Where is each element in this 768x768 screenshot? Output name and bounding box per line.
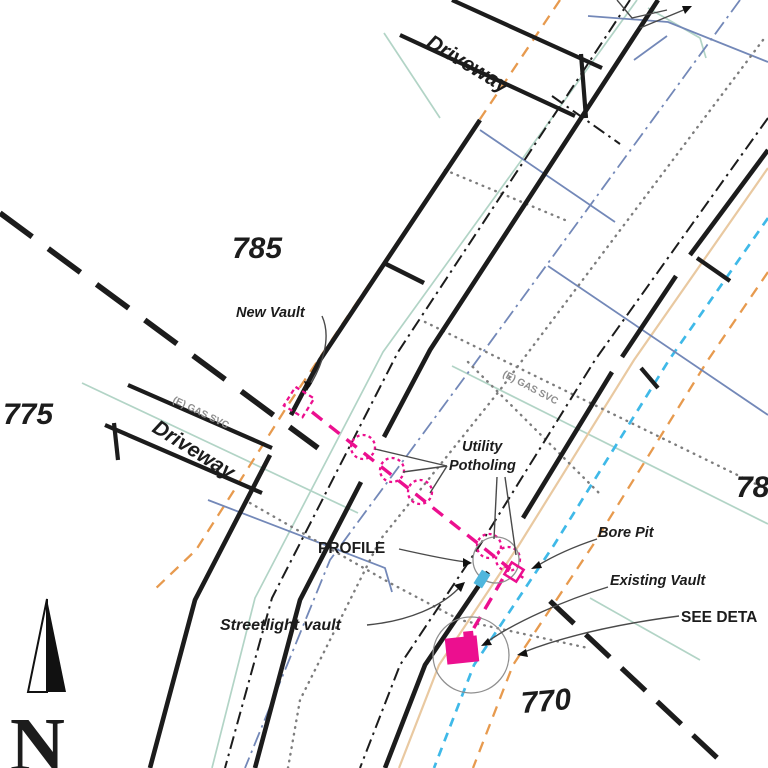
north-letter: N — [10, 703, 65, 768]
left-road-curbs — [150, 0, 658, 768]
station-780: 78 — [736, 471, 768, 504]
callout-labels: New Vault Utility Potholing PROFILE Stre… — [220, 305, 757, 634]
station-785: 785 — [232, 232, 283, 265]
gas-service-labels: (E) GAS SVC (E) GAS SVC — [171, 369, 560, 432]
north-arrow: N — [10, 599, 66, 768]
utility-potholing-label-line2: Potholing — [449, 458, 516, 474]
plan-drawing: N 785 775 78 770 Driveway Driveway (E) G… — [0, 0, 768, 768]
existing-vault-symbol — [444, 630, 479, 664]
driveway-edges — [105, 0, 602, 493]
station-770: 770 — [520, 683, 573, 720]
gas-svc-label-left: (E) GAS SVC — [171, 395, 231, 432]
teal-utility-lines — [82, 0, 768, 768]
streetlight-vault-label: Streetlight vault — [220, 617, 342, 634]
bore-pit-label: Bore Pit — [598, 525, 655, 541]
driveway-label-top: Driveway — [422, 31, 514, 99]
station-775: 775 — [3, 398, 54, 431]
cyan-dashed-utility-line — [434, 218, 768, 768]
see-detail-label: SEE DETA — [681, 609, 757, 626]
utility-plan-canvas: N 785 775 78 770 Driveway Driveway (E) G… — [0, 0, 768, 768]
station-labels: 785 775 78 770 — [3, 232, 768, 720]
utility-potholing-label-line1: Utility — [462, 439, 503, 455]
gas-svc-label-right: (E) GAS SVC — [501, 369, 560, 407]
profile-label: PROFILE — [318, 540, 385, 557]
new-vault-label: New Vault — [236, 305, 306, 321]
right-road-curbs — [385, 150, 768, 768]
existing-vault-label: Existing Vault — [610, 573, 707, 589]
